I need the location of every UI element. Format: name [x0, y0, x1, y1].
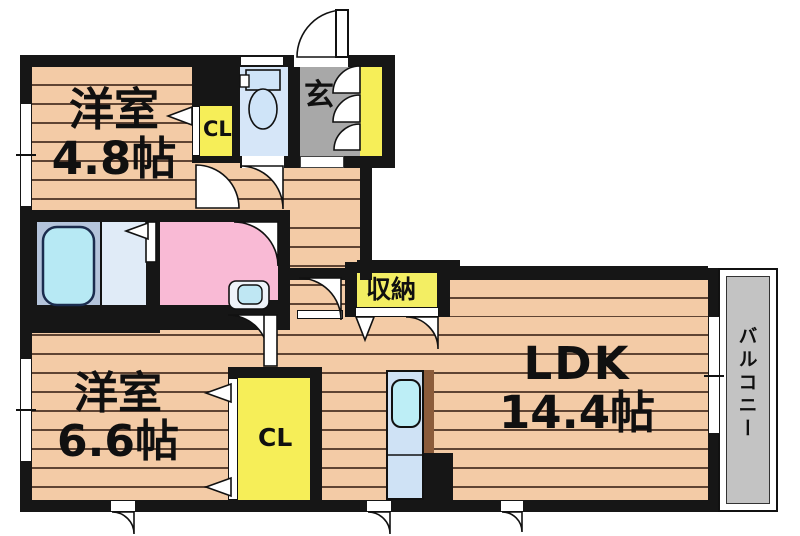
toilet-floor: [240, 63, 288, 156]
shoe-cabinet: [360, 67, 382, 156]
floor-ldk-upper: [448, 280, 708, 317]
closet-lower-label: CL: [258, 424, 292, 451]
entrance-label: 玄: [304, 80, 334, 112]
window-toilet-top: [240, 56, 284, 66]
storage-door-track: [355, 307, 439, 317]
vent-window-arc-1: [112, 512, 134, 534]
bedroom2-name: 洋室: [38, 370, 198, 418]
window-bedroom2-left: [20, 358, 32, 462]
wall-upper-right: [382, 55, 395, 168]
kitchen-counter-edge: [424, 370, 434, 453]
ldk-name: LDK: [468, 340, 686, 389]
closet-lower-top-wall: [228, 367, 322, 378]
wall-toilet-entrance: [288, 55, 300, 156]
toilet-door-threshold: [242, 156, 284, 168]
bath-washing-area: [100, 222, 146, 308]
bedroom2-size: 6.6帖: [38, 418, 198, 466]
storage-label: 収納: [366, 276, 416, 303]
bedroom1-name: 洋室: [36, 86, 192, 135]
bedroom2-label: 洋室 6.6帖: [38, 370, 198, 465]
front-door-threshold: [294, 55, 348, 67]
closet-lower-right-wall: [310, 378, 322, 500]
wall-above-ldk-door: [280, 268, 345, 280]
kitchen-unit: [386, 370, 424, 500]
bedroom1-label: 洋室 4.8帖: [36, 86, 192, 183]
ldk-label: LDK 14.4帖: [468, 340, 686, 437]
window-bedroom1-left: [20, 103, 32, 207]
wall-washroom-hall: [278, 210, 290, 310]
closet-lower-door-track: [228, 378, 238, 500]
floorplan-canvas: 洋室 4.8帖 洋室 6.6帖 LDK 14.4帖 玄 CL CL 収納 バルコ…: [0, 0, 800, 536]
closet-upper-label: CL: [203, 118, 232, 141]
washroom-floor: [160, 222, 278, 308]
front-door-arc: [297, 10, 344, 57]
bathroom-floor: [37, 222, 100, 308]
kitchen-wall-stub: [424, 453, 453, 505]
ldk-size: 14.4帖: [468, 389, 686, 438]
wall-under-bath: [20, 305, 160, 333]
front-door-leaf: [336, 10, 348, 57]
closet-upper-door-track: [192, 106, 200, 156]
wall-hall-right: [360, 166, 372, 280]
entrance-step: [300, 156, 344, 168]
window-bottom-3: [500, 500, 524, 512]
bedroom1-size: 4.8帖: [36, 135, 192, 184]
storage-top-wall: [357, 260, 460, 273]
wall-hall-stub: [266, 300, 290, 318]
ldk-door-sill: [297, 310, 343, 319]
window-ldk-balcony: [708, 316, 720, 434]
window-bottom-1: [110, 500, 136, 512]
vent-window-arc-3: [502, 512, 522, 532]
balcony-label: バルコニー: [736, 326, 757, 441]
wall-bath-top: [20, 210, 290, 222]
vent-window-arc-2: [368, 512, 390, 534]
wall-ldk-top: [448, 266, 708, 280]
window-bottom-2: [366, 500, 392, 512]
